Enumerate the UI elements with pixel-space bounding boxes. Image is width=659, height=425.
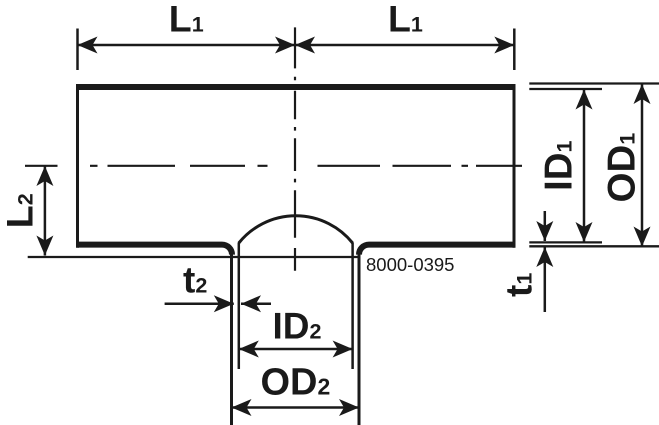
svg-text:OD2: OD2 [261, 362, 331, 404]
svg-text:ID2: ID2 [273, 306, 322, 347]
svg-text:L1: L1 [388, 0, 423, 40]
svg-text:OD1: OD1 [601, 133, 644, 203]
svg-text:t1: t1 [499, 273, 540, 297]
svg-text:ID1: ID1 [538, 141, 581, 192]
svg-text:L1: L1 [169, 0, 204, 40]
svg-text:L2: L2 [0, 193, 40, 228]
svg-text:8000-0395: 8000-0395 [366, 254, 454, 275]
svg-text:t2: t2 [183, 260, 207, 301]
